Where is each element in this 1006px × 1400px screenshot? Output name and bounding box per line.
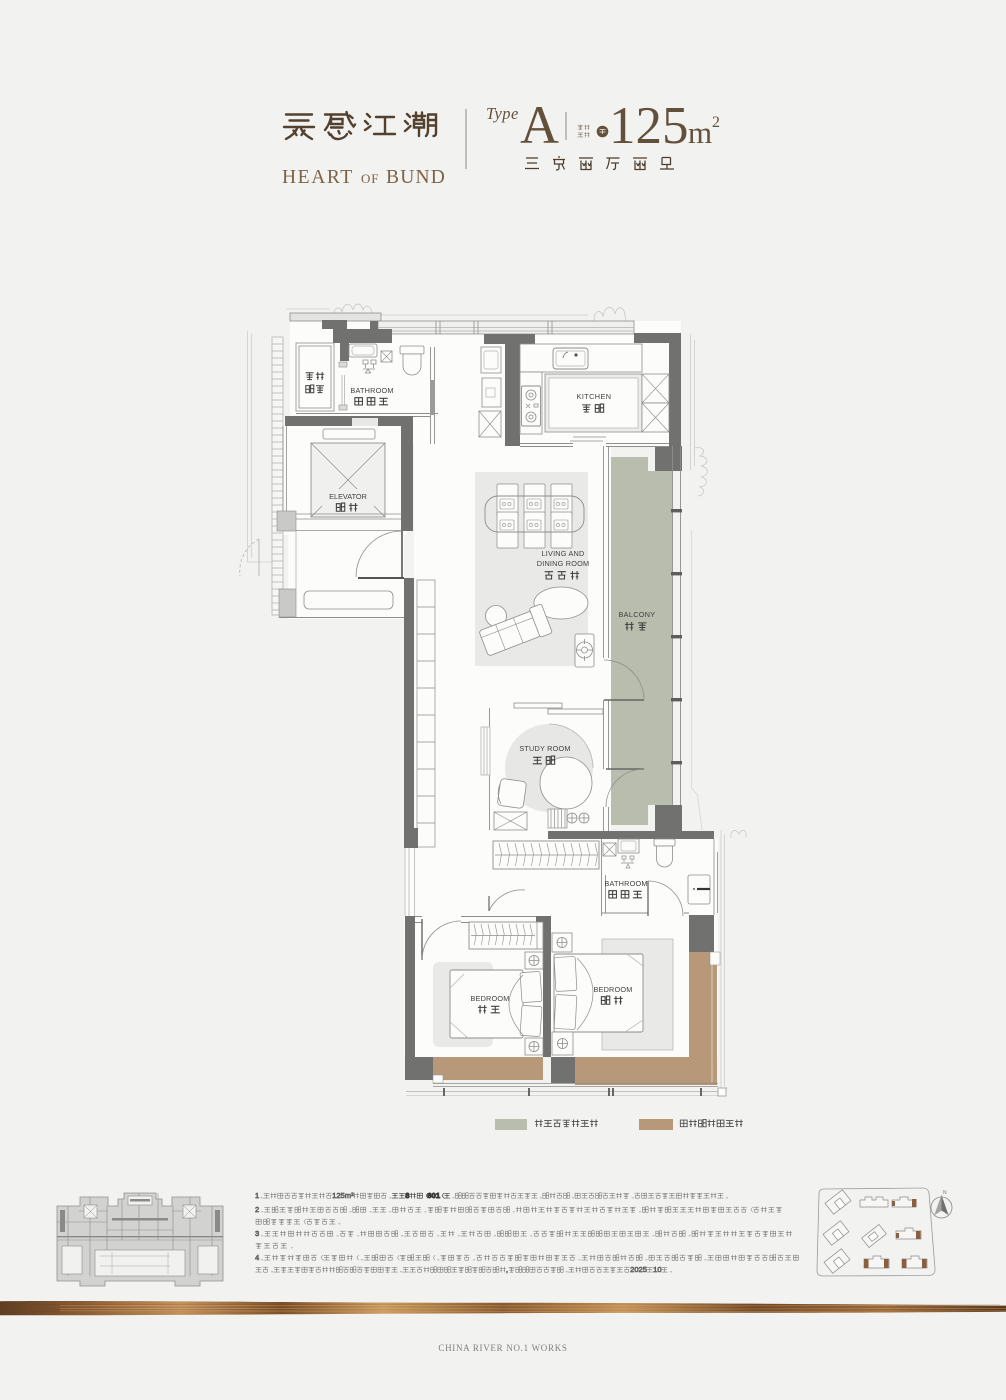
svg-text:125: 125 [609,97,689,155]
svg-text:1: 1 [255,1191,259,1200]
svg-text:3: 3 [255,1229,259,1238]
svg-text:OF: OF [361,171,379,186]
svg-text:CHINA RIVER NO.1 WORKS: CHINA RIVER NO.1 WORKS [438,1343,567,1353]
svg-text:m: m [688,115,712,150]
svg-text:BATHROOM: BATHROOM [604,879,647,888]
svg-text:STUDY ROOM: STUDY ROOM [519,744,570,753]
svg-text:HEART: HEART [282,167,354,188]
svg-text:2025: 2025 [630,1265,647,1274]
svg-text:8: 8 [405,1191,409,1200]
svg-text:2: 2 [255,1205,259,1214]
svg-text:125m²: 125m² [332,1191,354,1200]
svg-text:BUND: BUND [386,167,446,188]
svg-text:,: , [506,1265,508,1274]
svg-text:BEDROOM: BEDROOM [593,985,632,994]
svg-text:BATHROOM: BATHROOM [350,386,393,395]
svg-text:KITCHEN: KITCHEN [577,392,612,401]
svg-text:DINING ROOM: DINING ROOM [537,559,589,568]
svg-text:N: N [943,1190,947,1196]
svg-text:BEDROOM: BEDROOM [470,994,509,1003]
svg-text:BALCONY: BALCONY [619,610,656,619]
svg-text:A: A [520,95,559,155]
svg-text:10: 10 [653,1265,661,1274]
svg-text:Type: Type [486,104,519,123]
svg-text:2: 2 [712,114,720,131]
svg-text:LIVING AND: LIVING AND [542,549,585,558]
svg-text:601: 601 [427,1191,440,1200]
svg-text:ELEVATOR: ELEVATOR [329,492,367,501]
svg-text:4: 4 [255,1253,259,1262]
